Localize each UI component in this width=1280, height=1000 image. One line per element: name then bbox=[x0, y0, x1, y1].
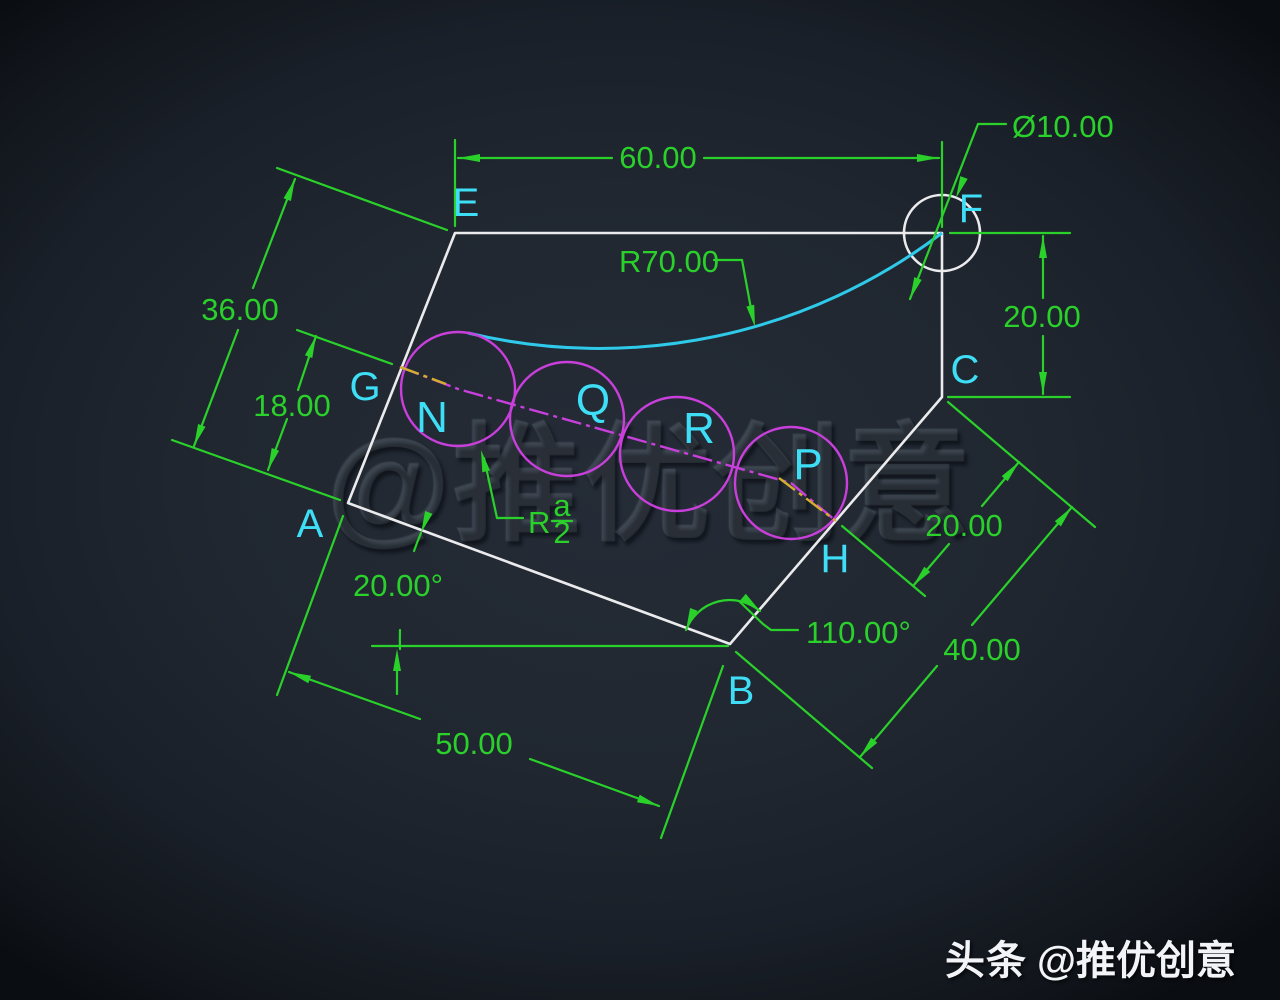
corner-watermark-handle: @推优创意 bbox=[1037, 939, 1236, 983]
ext-line bbox=[736, 652, 872, 768]
circle-labels: N Q R P bbox=[416, 376, 823, 489]
dim-ab-length: 50.00 bbox=[277, 516, 723, 838]
dim-text-50: 50.00 bbox=[435, 726, 513, 761]
dim-text-angle-b: 110.00° bbox=[806, 615, 911, 650]
circle-label-n: N bbox=[416, 393, 448, 442]
arrowhead bbox=[458, 154, 480, 162]
vertex-label-a: A bbox=[297, 502, 324, 546]
vertex-label-g: G bbox=[349, 365, 380, 409]
arrowhead bbox=[194, 424, 206, 446]
arrowhead bbox=[393, 649, 401, 671]
dim-circle-radius: R a 2 bbox=[481, 450, 572, 550]
dim-text-40: 40.00 bbox=[943, 632, 1021, 667]
arrowhead bbox=[686, 608, 698, 630]
arrowhead bbox=[268, 448, 279, 470]
dim-bc-length: 40.00 bbox=[736, 402, 1095, 768]
cad-drawing: 60.00 Ø10.00 R70.00 20.00 bbox=[0, 0, 1280, 1000]
corner-watermark-badge: 头条 bbox=[945, 939, 1027, 983]
arrowhead bbox=[910, 277, 922, 299]
arrowhead bbox=[421, 511, 433, 533]
arrowhead bbox=[481, 450, 490, 472]
arrowhead bbox=[305, 336, 316, 358]
vertex-label-f: F bbox=[959, 187, 983, 231]
arrowhead bbox=[1039, 372, 1047, 394]
circle-label-p: P bbox=[793, 440, 822, 489]
vertex-label-c: C bbox=[951, 348, 980, 392]
arrowhead bbox=[1039, 236, 1047, 258]
dim-text-36: 36.00 bbox=[201, 292, 279, 327]
circle-label-r: R bbox=[683, 404, 715, 453]
arrowhead bbox=[746, 305, 755, 327]
dim-text-60: 60.00 bbox=[619, 140, 697, 175]
tangent-circles bbox=[401, 332, 847, 539]
leader-line bbox=[742, 260, 751, 306]
ext-line bbox=[661, 666, 723, 838]
arrowhead bbox=[284, 179, 296, 201]
circle-r bbox=[620, 397, 734, 511]
radius-denominator: 2 bbox=[553, 515, 570, 550]
dim-top-width: 60.00 bbox=[455, 140, 942, 227]
vertex-label-e: E bbox=[453, 181, 480, 225]
cad-canvas: @推优创意 60.00 bbox=[0, 0, 1280, 1000]
dim-arc-radius: R70.00 bbox=[619, 244, 755, 327]
dim-text-angle-a: 20.00° bbox=[353, 568, 443, 603]
vertex-label-b: B bbox=[728, 669, 755, 713]
arrowhead bbox=[637, 795, 659, 806]
vertex-label-h: H bbox=[821, 537, 850, 581]
dim-text-18: 18.00 bbox=[253, 388, 331, 423]
dim-text-r70: R70.00 bbox=[619, 244, 719, 279]
radius-prefix: R bbox=[528, 505, 550, 540]
dim-text-20hc: 20.00 bbox=[925, 508, 1003, 543]
arrowhead bbox=[917, 154, 939, 162]
ext-line bbox=[277, 168, 447, 230]
arrowhead bbox=[289, 672, 311, 683]
leader-line bbox=[740, 602, 798, 630]
angle-arc bbox=[414, 533, 421, 551]
dim-text-dia10: Ø10.00 bbox=[1012, 109, 1114, 144]
corner-watermark: 头条@推优创意 bbox=[945, 928, 1236, 986]
circle-label-q: Q bbox=[576, 376, 610, 425]
ext-line bbox=[172, 440, 340, 500]
dim-text-20v: 20.00 bbox=[1003, 299, 1081, 334]
centerline-yellow-start bbox=[400, 367, 446, 384]
